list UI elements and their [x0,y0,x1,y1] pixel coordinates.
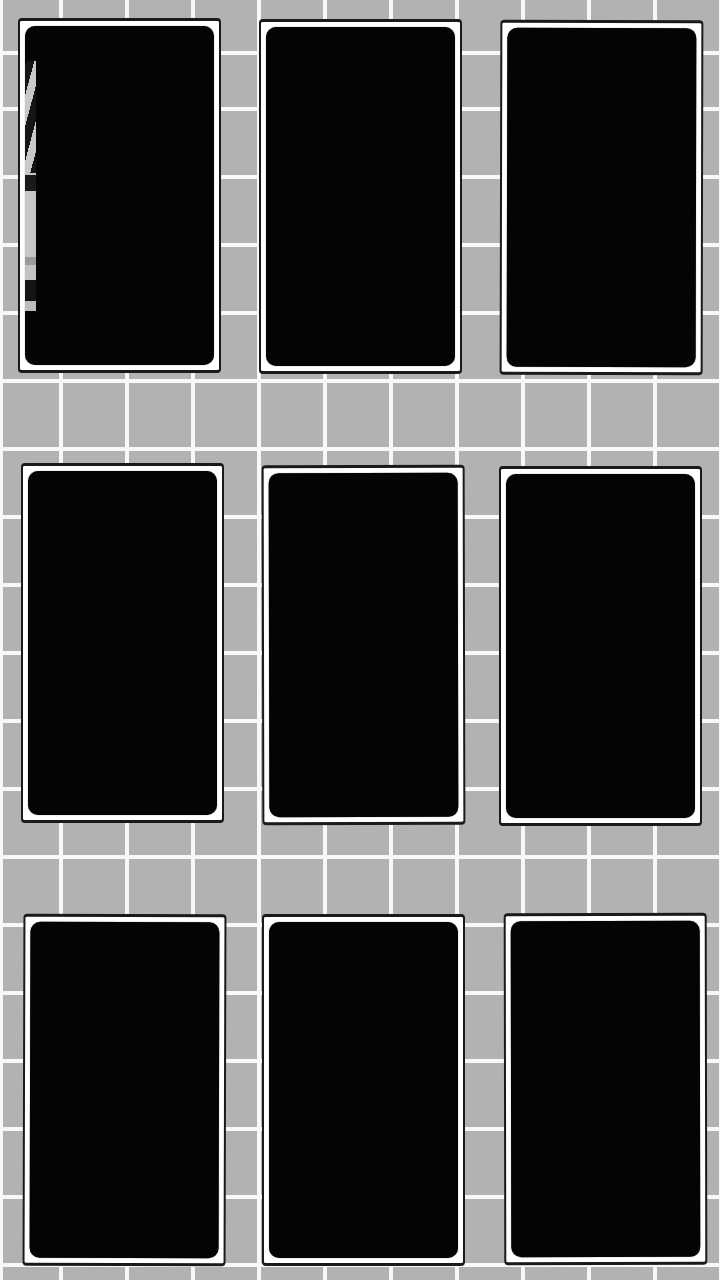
card-back [28,471,217,815]
card-back [507,28,697,367]
card-back [269,922,458,1258]
card-r1-c3[interactable] [500,20,704,375]
card-r2-c2[interactable] [262,465,466,825]
card-r3-c2[interactable] [262,914,465,1266]
card-back [25,26,214,365]
card-back [30,922,220,1258]
card-r1-c2[interactable] [259,19,462,374]
card-r3-c3[interactable] [504,913,708,1265]
card-r2-c3[interactable] [499,466,702,826]
card-r2-c1[interactable] [21,463,224,823]
card-back [266,27,455,366]
revealed-photo-sliver [25,61,36,313]
card-r1-c1[interactable] [18,18,221,373]
card-board [0,0,720,1280]
card-back [506,474,695,818]
card-back [269,473,459,817]
card-r3-c1[interactable] [23,914,227,1267]
card-back [511,921,701,1257]
tiled-wall-background [0,0,720,1280]
